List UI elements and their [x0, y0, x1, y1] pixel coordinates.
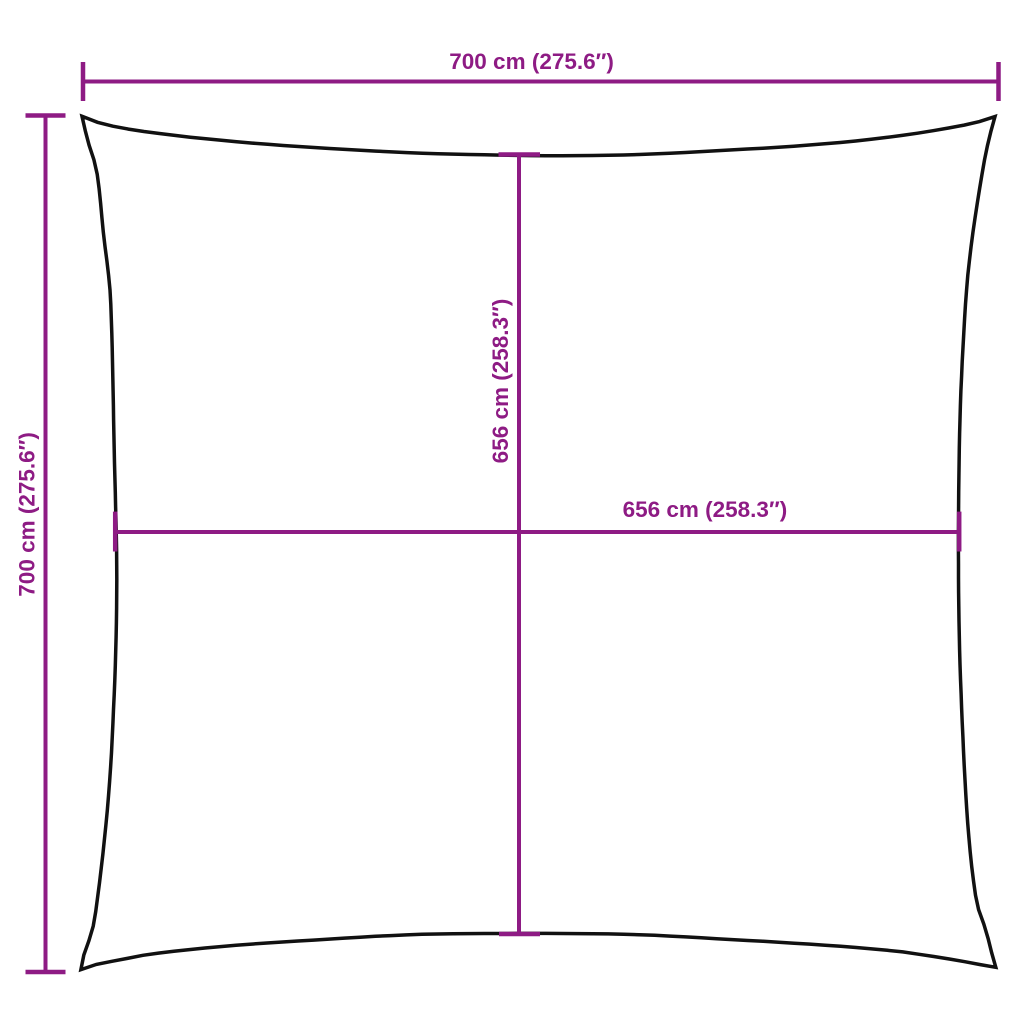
svg-text:656 cm (258.3″): 656 cm (258.3″) [488, 299, 513, 464]
svg-text:700 cm (275.6″): 700 cm (275.6″) [449, 49, 614, 74]
svg-text:700 cm (275.6″): 700 cm (275.6″) [15, 432, 40, 597]
svg-text:656 cm (258.3″): 656 cm (258.3″) [623, 497, 788, 522]
